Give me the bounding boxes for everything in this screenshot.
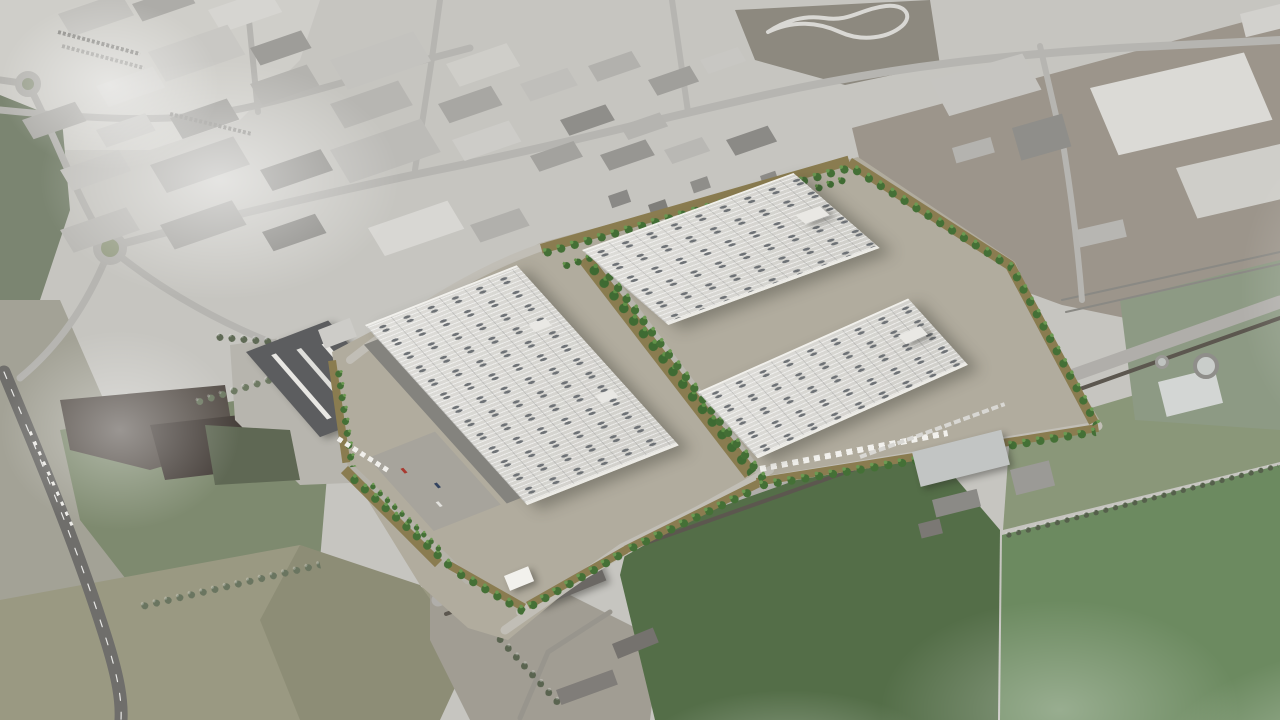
clarifier-tank <box>1193 353 1219 379</box>
site-roads <box>0 0 1280 720</box>
roof-unit <box>795 206 830 224</box>
car-red <box>400 468 407 474</box>
roof-unit <box>595 389 618 403</box>
roof-unit <box>529 318 552 332</box>
car-white <box>436 501 443 507</box>
roof-unit <box>898 326 928 344</box>
small-tank <box>1155 355 1169 369</box>
aerial-image: Aerial CGI visualisation of a logistics … <box>0 0 1280 720</box>
car-blue <box>434 483 441 489</box>
